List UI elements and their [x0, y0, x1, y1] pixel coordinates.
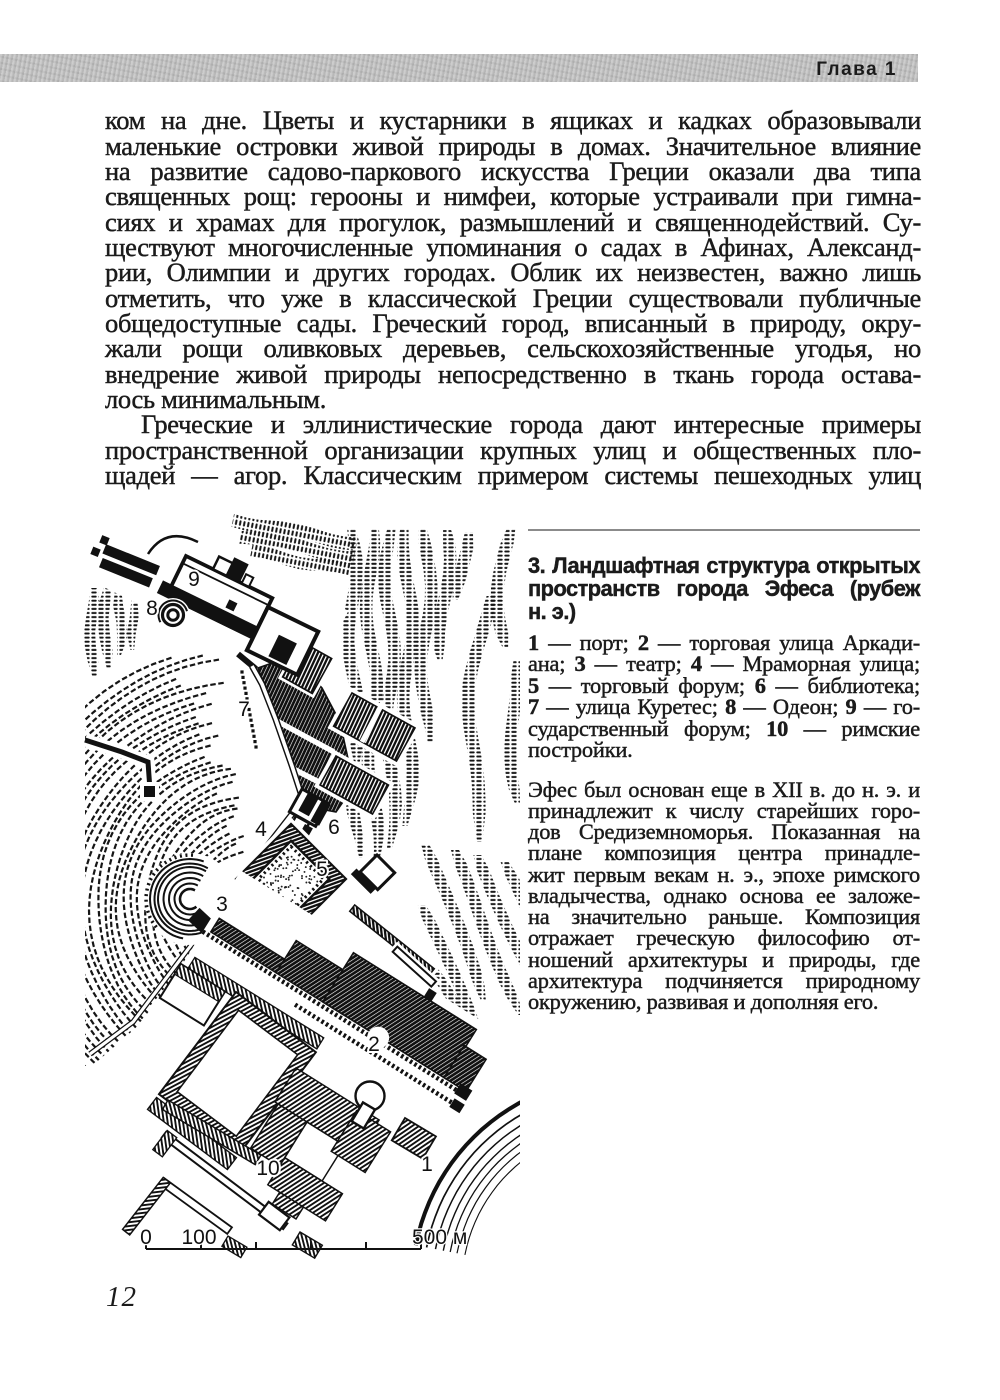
svg-text:5: 5 — [316, 858, 328, 881]
svg-text:0: 0 — [140, 1226, 152, 1249]
svg-text:9: 9 — [188, 568, 200, 591]
svg-text:1: 1 — [421, 1153, 433, 1176]
svg-text:100: 100 — [181, 1226, 216, 1249]
svg-text:4: 4 — [255, 818, 267, 841]
svg-text:6: 6 — [328, 816, 340, 839]
svg-text:500 м: 500 м — [412, 1226, 467, 1249]
svg-text:10: 10 — [256, 1157, 279, 1180]
svg-text:2: 2 — [368, 1033, 380, 1056]
svg-text:8: 8 — [146, 597, 158, 620]
svg-text:7: 7 — [238, 698, 250, 721]
svg-text:3: 3 — [216, 893, 228, 916]
